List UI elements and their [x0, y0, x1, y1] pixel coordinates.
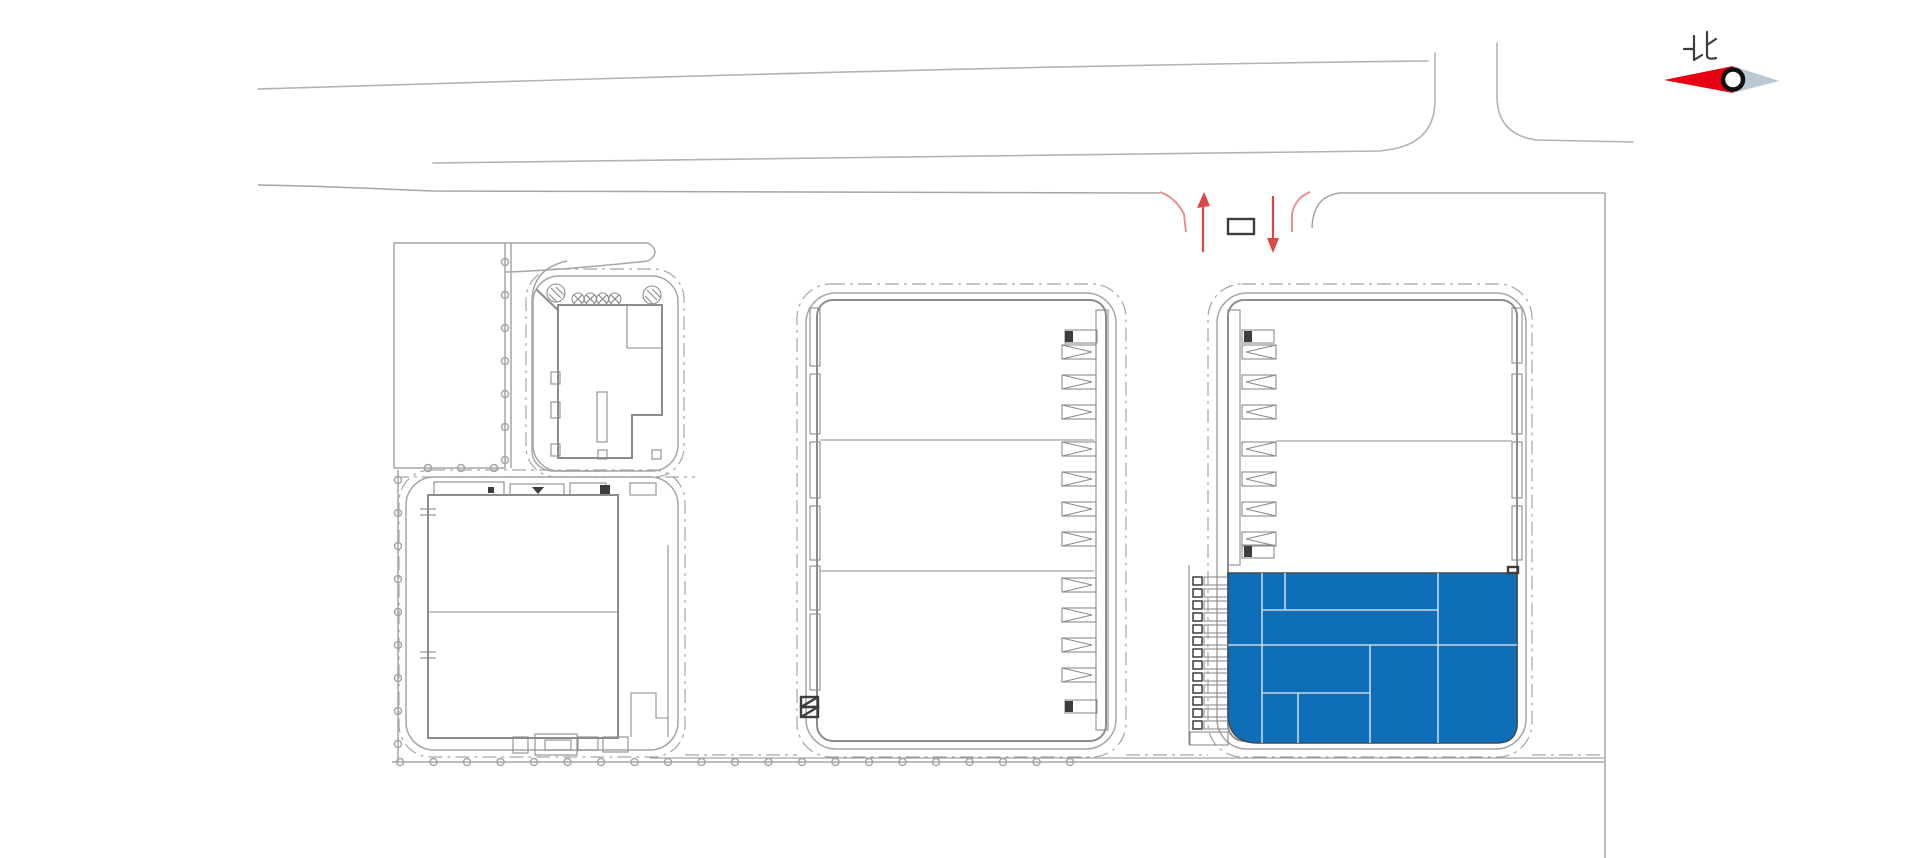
elevator-slot: [597, 392, 607, 442]
roof-structure-dark: [600, 485, 610, 494]
building-c-dock-bays: [1062, 330, 1097, 713]
dock-bay-chevron: [1062, 442, 1092, 456]
dock-endcap-dark: [1065, 701, 1073, 712]
dock-door-seal: [1193, 685, 1202, 693]
entrance-arrow-out-head: [1267, 238, 1279, 253]
site-plan-page: 北: [0, 0, 1920, 858]
site-b-dashdot: [399, 470, 685, 757]
site-boundary-top-left: [258, 185, 1160, 193]
dock-door-seal: [1193, 649, 1202, 657]
dock-door-seal: [1193, 637, 1202, 645]
dock-bay-chevron: [1062, 375, 1092, 389]
site-a-dashdot: [526, 269, 684, 477]
building-d-dock-wall: [1228, 310, 1240, 565]
dock-bay-chevron: [1062, 578, 1092, 592]
dock-bay-chevron: [1246, 375, 1276, 389]
fan-blade-lines: [574, 295, 582, 303]
dock-bay-chevron: [1062, 668, 1092, 682]
dock-bay-chevron: [1062, 532, 1092, 546]
dock-door-seal: [1193, 697, 1202, 705]
wall-strip: [810, 374, 820, 434]
site-c-dashdot: [797, 284, 1126, 757]
building-a-annex-lines: [627, 305, 662, 348]
dock-bay-chevron: [1062, 345, 1092, 359]
wall-notch: [652, 450, 661, 459]
dock-platform: [1190, 732, 1228, 745]
left-complex: [394, 243, 695, 762]
building-c-wall-strips: [810, 308, 820, 690]
highlighted-building-footprint[interactable]: [1228, 573, 1517, 743]
dock-bay-chevron: [1062, 472, 1092, 486]
dock-bay-chevron: [1246, 405, 1276, 419]
building-c-dividers: [820, 440, 1094, 571]
building-d-dock-bays: [1242, 330, 1276, 558]
road-top-edge: [258, 61, 1428, 89]
wall-strip: [810, 566, 820, 610]
fan-blade-lines: [611, 295, 619, 303]
dock-bay-chevron: [1246, 472, 1276, 486]
dock-endcap-dark: [1244, 331, 1252, 342]
dock-door-seal: [1193, 709, 1202, 717]
dock-structure: [545, 740, 571, 750]
site-b-curb: [406, 477, 678, 750]
building-site-a: [526, 269, 684, 477]
roof-structure: [630, 483, 656, 495]
dock-door-seal: [1193, 613, 1202, 621]
wall-strip: [810, 308, 820, 366]
entrance-arrow-in-head: [1197, 192, 1210, 208]
dock-endcap-dark: [1244, 546, 1252, 557]
rooftop-fans: [572, 293, 621, 305]
dock-bay-chevron: [1062, 405, 1092, 419]
entrance-marker: [1160, 192, 1310, 253]
parking-posts: [425, 259, 509, 472]
compass-hub: [1723, 70, 1743, 90]
building-site-d: [1189, 284, 1532, 757]
road-island: [505, 243, 655, 272]
dock-bay-chevron: [1246, 532, 1276, 546]
hatch-cell-diag: [801, 697, 818, 707]
dock-door-seal: [1193, 577, 1202, 585]
roof-structure-dark: [488, 487, 494, 493]
site-plan-canvas: 北: [0, 0, 1920, 858]
building-b-roof-structures: [434, 482, 656, 495]
fan-blade-lines: [598, 295, 606, 303]
dock-door-seal: [1193, 721, 1202, 729]
dock-endcap-dark: [1065, 331, 1073, 342]
dock-door-seal: [1193, 625, 1202, 633]
dock-bay-chevron: [1246, 502, 1276, 516]
road-bottom-edge-right: [1497, 43, 1633, 142]
highlighted-building-docks: [1193, 577, 1228, 729]
entrance-flare-right: [1292, 192, 1310, 232]
north-compass: 北: [1664, 32, 1779, 93]
parking-lot: [394, 243, 505, 468]
wall-strip: [810, 442, 820, 498]
building-site-b: [399, 470, 685, 757]
wall-strip: [810, 614, 820, 690]
entrance-flare-left: [1160, 192, 1186, 232]
fan-blade-lines: [586, 295, 594, 303]
dock-bay-chevron: [1062, 502, 1092, 516]
hatch-cell-diag: [801, 707, 818, 717]
gate-house: [1228, 219, 1254, 234]
dock-bay-chevron: [1062, 608, 1092, 622]
site-boundary-top-right: [1312, 193, 1605, 228]
building-a-outline: [558, 305, 662, 458]
building-b-outline: [428, 495, 618, 738]
dock-door-seal: [1193, 601, 1202, 609]
highlighted-building[interactable]: [1228, 567, 1518, 743]
building-c-outline: [817, 300, 1106, 741]
wall-strip: [810, 506, 820, 560]
dock-door-seal: [1193, 589, 1202, 597]
dock-door-seal: [1193, 661, 1202, 669]
building-c-corner-hatchbox: [801, 697, 818, 717]
dock-bay-chevron: [1246, 442, 1276, 456]
dock-bay-chevron: [1246, 345, 1276, 359]
building-site-c: [797, 284, 1126, 757]
dock-bay-chevron: [1062, 638, 1092, 652]
roof-vent-triangle: [532, 487, 544, 494]
dock-door-seal: [1193, 673, 1202, 681]
building-b-ramp: [631, 693, 668, 737]
